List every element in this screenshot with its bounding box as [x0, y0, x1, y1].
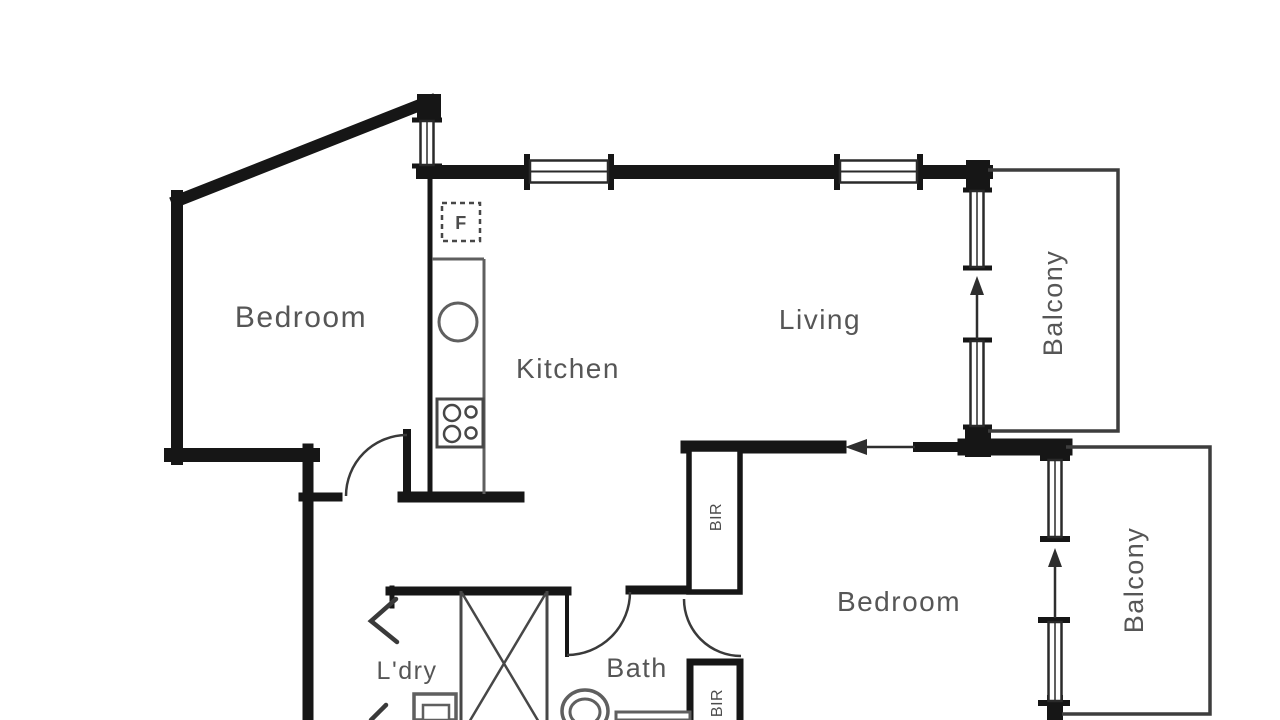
window-icon	[527, 154, 611, 190]
door-arc	[684, 599, 741, 656]
robe2-label: BIR	[709, 689, 726, 717]
window-icon	[963, 340, 992, 427]
wall-corner	[417, 94, 441, 121]
door-arc	[567, 592, 630, 655]
cooktop-icon	[437, 399, 483, 447]
living-label: Living	[779, 304, 861, 335]
sink-icon	[439, 303, 477, 341]
diagonal-wall	[177, 101, 430, 201]
counter	[432, 259, 484, 494]
laundry-label: L'dry	[377, 657, 438, 685]
window-icon	[963, 190, 992, 268]
kitchen-label: Kitchen	[516, 353, 620, 384]
window-icon	[1038, 620, 1070, 703]
toilet-icon	[562, 690, 608, 720]
door-arc	[346, 435, 407, 496]
windows	[412, 120, 1070, 703]
bath-label: Bath	[606, 653, 668, 683]
entry-arrow-icon	[845, 439, 915, 455]
fridge-label: F	[455, 213, 467, 233]
outer-walls	[171, 101, 1064, 720]
window-icon	[412, 120, 442, 166]
wall-corner	[965, 426, 991, 457]
balcony2-label: Balcony	[1119, 527, 1149, 634]
kitchen-fixtures	[432, 203, 484, 494]
floor-plan-drawing: Bedroom Kitchen Living Balcony Bedroom B…	[0, 0, 1280, 720]
window-icon	[1040, 458, 1070, 539]
shower-box	[461, 591, 547, 720]
robe1-label: BIR	[708, 503, 725, 531]
wall-corner	[966, 160, 990, 191]
up-arrow-icon	[1048, 548, 1062, 618]
laundry-tub	[414, 694, 456, 720]
up-arrow-icon	[970, 276, 984, 339]
window-icon	[837, 154, 920, 190]
vanity	[616, 712, 690, 720]
balcony1-label: Balcony	[1038, 250, 1068, 357]
floor-plan: Bedroom Kitchen Living Balcony Bedroom B…	[0, 0, 1280, 720]
bedroom1-label: Bedroom	[235, 301, 367, 334]
bedroom2-label: Bedroom	[837, 586, 961, 617]
